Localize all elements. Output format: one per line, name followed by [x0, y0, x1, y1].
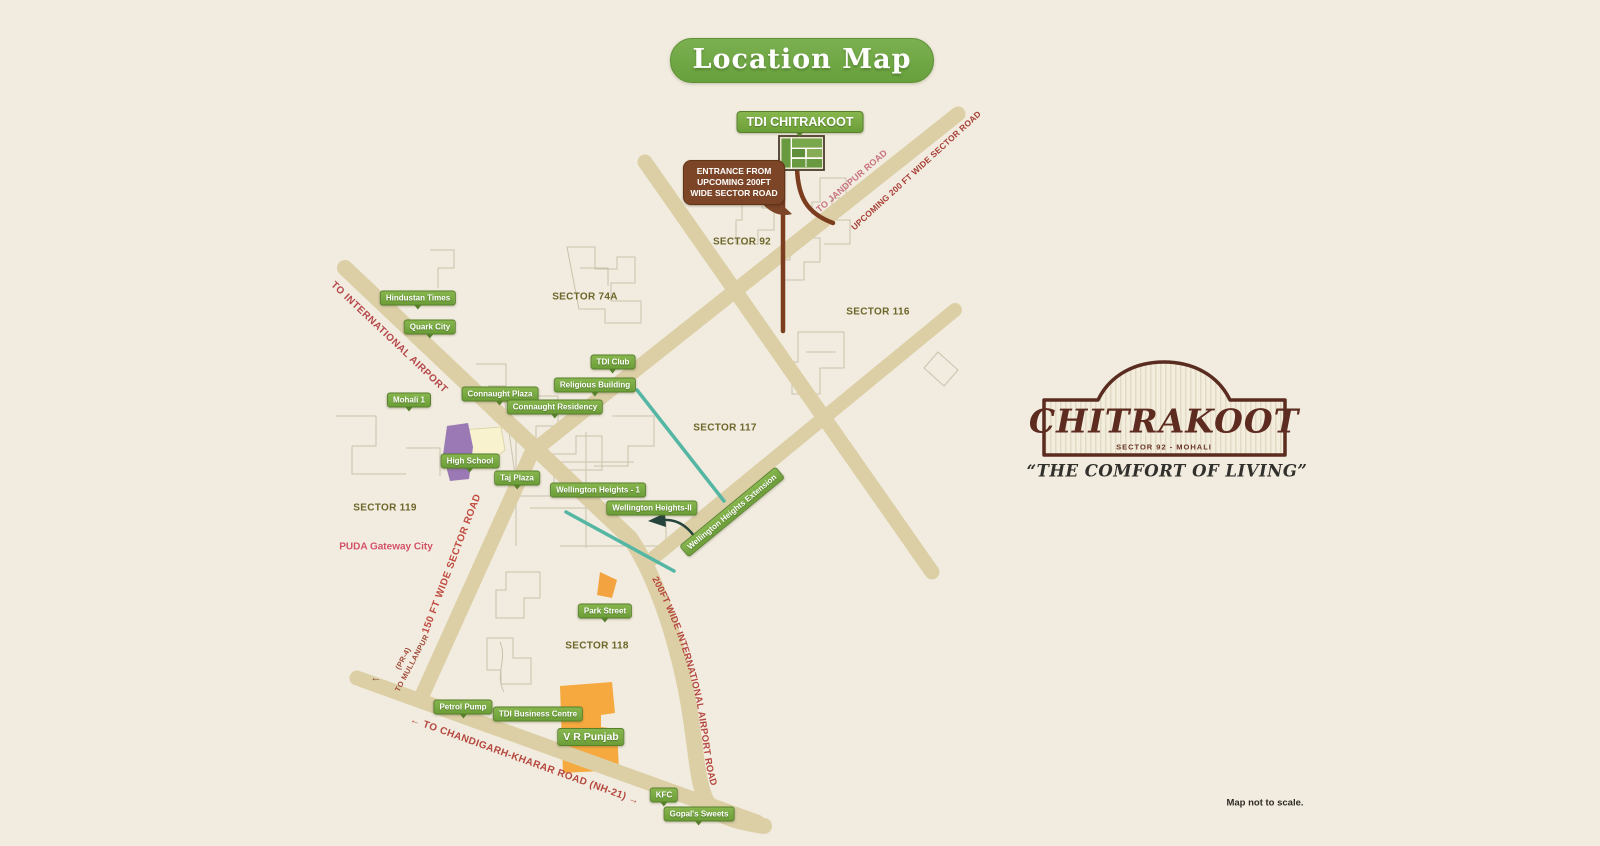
place-label-petrol-pump: Petrol Pump — [433, 700, 492, 715]
place-label-tdi-business-centre: TDI Business Centre — [493, 707, 583, 722]
place-label-religious-building: Religious Building — [554, 378, 636, 393]
brand-subtitle: SECTOR 92 - MOHALI — [1116, 443, 1212, 452]
entrance-callout-line: WIDE SECTOR ROAD — [686, 188, 782, 199]
place-label-quark-city: Quark City — [404, 320, 456, 335]
sector-label-sector-74a: SECTOR 74A — [552, 292, 618, 303]
sector-label-sector-117: SECTOR 117 — [693, 423, 756, 434]
place-label-gopal-s-sweets: Gopal's Sweets — [664, 807, 735, 822]
entrance-callout-line: UPCOMING 200FT — [686, 177, 782, 188]
place-label-park-street: Park Street — [578, 604, 632, 619]
road-direction-arrow: ← — [371, 672, 382, 684]
place-label-kfc: KFC — [650, 788, 678, 803]
brand-tagline: “THE COMFORT OF LIVING” — [1027, 462, 1308, 481]
sector-label-sector-118: SECTOR 118 — [565, 641, 628, 652]
brand-name: CHITRAKOOT — [1029, 402, 1299, 441]
sector-label-sector-116: SECTOR 116 — [846, 307, 909, 318]
place-label-wellington-heights-ii: Wellington Heights-II — [606, 501, 697, 516]
place-label-connaught-residency: Connaught Residency — [507, 400, 603, 415]
place-label-high-school: High School — [441, 454, 500, 469]
entrance-callout-line: ENTRANCE FROM — [686, 166, 782, 177]
place-label-wellington-heights-1: Wellington Heights - 1 — [550, 483, 646, 498]
label-layer: Location Map TDI CHITRAKOOT ENTRANCE FRO… — [0, 0, 1600, 846]
place-label-mohali-1: Mohali 1 — [387, 393, 431, 408]
place-label-hindustan-times: Hindustan Times — [380, 291, 456, 306]
map-scale-note: Map not to scale. — [1226, 798, 1303, 809]
sector-label-sector-92: SECTOR 92 — [713, 237, 771, 248]
place-label-v-r-punjab: V R Punjab — [557, 728, 624, 746]
place-label-tdi-club: TDI Club — [591, 355, 636, 370]
project-label-tdi-chitrakoot: TDI CHITRAKOOT — [737, 111, 864, 133]
sector-label-sector-119: SECTOR 119 — [353, 503, 416, 514]
page-title: Location Map — [670, 38, 934, 83]
location-map-page: TO INTERNATIONAL AIRPORT 150 FT WIDE SEC… — [0, 0, 1600, 846]
area-label-puda-gateway-city: PUDA Gateway City — [339, 542, 433, 553]
entrance-callout: ENTRANCE FROM UPCOMING 200FT WIDE SECTOR… — [683, 160, 785, 205]
road-label-pr4-to-mullanpur: (PR-4) TO MULLANPUR — [384, 628, 432, 694]
place-label-taj-plaza: Taj Plaza — [494, 471, 540, 486]
